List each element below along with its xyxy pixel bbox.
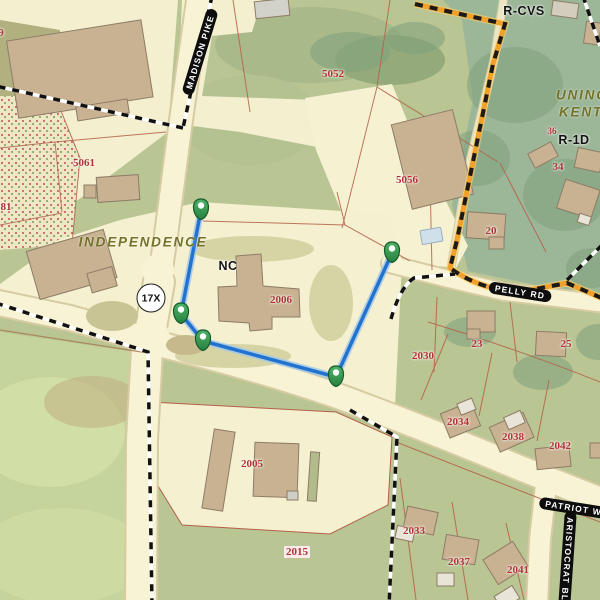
parcel-label-25: 25 [561,338,572,350]
road-label-patriot-way: PATRIOT WAY [538,497,600,522]
place-label-kenton: KENTON [559,105,600,120]
route-shield-17x: 17X [137,284,166,313]
road-label-aristocrat-blvd: ARISTOCRAT BLVD [557,511,577,600]
map-canvas[interactable]: 9505250618150563634202006232520302034203… [0,0,600,600]
parcel-label-2041: 2041 [507,564,529,576]
parcel-label-9: 9 [0,27,4,39]
parcel-label-5061: 5061 [73,157,95,169]
parcel-label-34: 34 [553,161,564,173]
parcel-label-23: 23 [472,338,483,350]
place-label-independence: INDEPENDENCE [79,235,208,250]
parcel-label-2015: 2015 [284,546,310,558]
parcel-label-2038: 2038 [502,431,524,443]
zone-label-nc: NC [218,259,237,273]
parcel-label-2030: 2030 [412,350,434,362]
map-labels: 9505250618150563634202006232520302034203… [0,0,600,600]
parcel-label-5052: 5052 [322,68,344,80]
parcel-label-5056: 5056 [396,174,418,186]
zone-label-r-1d: R-1D [558,133,589,147]
parcel-label-2034: 2034 [447,416,469,428]
road-label-madison-pike: MADISON PIKE [181,8,218,96]
parcel-label-36: 36 [548,126,557,136]
parcel-label-2033: 2033 [403,525,425,537]
road-label-pelly-rd: PELLY RD [488,281,552,303]
parcel-label-20: 20 [486,225,497,237]
parcel-label-2037: 2037 [448,556,470,568]
parcel-label-2005: 2005 [241,458,263,470]
place-label-unincorporated: UNINCORPORATED [556,88,600,103]
parcel-label-81: 81 [1,201,12,213]
zone-label-r-cvs: R-CVS [503,4,544,18]
parcel-label-2006: 2006 [270,294,292,306]
parcel-label-2042: 2042 [549,440,571,452]
